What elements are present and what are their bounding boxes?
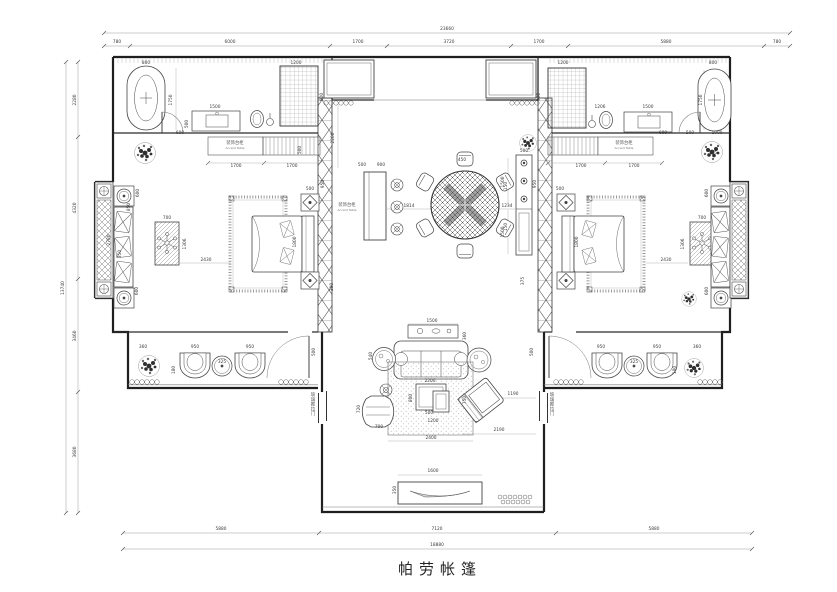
text-label: 装饰台柜 — [226, 139, 244, 146]
dim-label: 2280 — [72, 94, 78, 105]
drawer-cabinet-right — [548, 137, 598, 155]
plant-sitting-left — [139, 356, 160, 377]
dim-label: 1200 — [428, 418, 439, 424]
dim-label: 500 — [311, 348, 317, 356]
bar-stool-1 — [391, 179, 403, 191]
dim-label: 300 — [329, 283, 335, 291]
dim-label: 500 — [297, 146, 303, 154]
text-label: 装饰台柜 — [615, 139, 633, 146]
dim-label: 1234 — [502, 203, 513, 209]
door-sitting-left — [267, 336, 309, 378]
dim-label: 2200 — [425, 378, 436, 384]
dim-label: 1306 — [182, 238, 188, 249]
dim-label: 1800 — [292, 236, 298, 247]
headboard-right — [562, 216, 574, 272]
plant-bedroom-right — [682, 292, 697, 307]
dim-label: 500 — [556, 186, 564, 192]
dim-label: 1200 — [558, 60, 569, 66]
dim-label: 1700 — [287, 163, 298, 169]
dim-label: 500 — [529, 348, 535, 356]
dim-label: 900 — [377, 162, 385, 168]
side-table-right-top — [711, 186, 731, 206]
dim-label: 600 — [704, 287, 710, 295]
coffee-table — [416, 384, 449, 412]
dining-chair-5 — [415, 218, 435, 239]
dim-label: 180 — [672, 366, 678, 374]
dim-label: 7120 — [432, 526, 443, 532]
plant-bath-left — [135, 143, 156, 164]
dim-label: 700 — [698, 215, 706, 221]
dim-label: 1200 — [291, 60, 302, 66]
door-label: 玻璃推拉门 — [550, 391, 555, 417]
side-table-right-bottom — [711, 288, 731, 308]
tub-chair-left-1 — [180, 353, 210, 378]
dining-table — [431, 171, 499, 239]
door-label: 玻璃推拉门 — [311, 391, 316, 417]
dim-label: 2430 — [661, 257, 672, 263]
floor-plan-canvas: 2366078060001700372017005880780588071205… — [0, 0, 837, 592]
dim-label: 800 — [142, 60, 150, 66]
bar-counter — [364, 172, 386, 240]
dim-label: 1500 — [500, 176, 506, 187]
dim-label: 1750 — [698, 94, 704, 105]
dim-label: 350 — [392, 486, 398, 494]
dim-label: 3680 — [72, 446, 78, 457]
dim-label: 750 — [462, 396, 468, 404]
dim-label: 720 — [356, 405, 362, 413]
door-sitting-right — [549, 336, 591, 378]
side-table-left-bottom — [114, 288, 134, 308]
dim-label: 6000 — [225, 39, 236, 45]
walls-interior — [113, 57, 730, 332]
dim-label: 450 — [458, 157, 466, 163]
bathtub-left — [127, 66, 165, 130]
nightstand-right-top — [557, 194, 575, 211]
dim-label: 23660 — [440, 26, 454, 32]
entry-curtain-scallops — [324, 101, 539, 105]
dim-label: 500 — [306, 186, 314, 192]
dim-label: 850 — [126, 203, 132, 211]
curtain-strip-right — [548, 59, 728, 64]
dim-label: 700 — [163, 215, 171, 221]
bar-stool-2 — [391, 201, 403, 213]
dim-label: 500 — [520, 148, 528, 154]
dim-label: 1750 — [168, 94, 174, 105]
tub-chair-left-2 — [235, 353, 265, 378]
dim-label: 1800 — [574, 236, 580, 247]
dim-label: 950 — [532, 180, 538, 188]
bench-right — [711, 207, 730, 287]
dim-label: 13740 — [60, 281, 66, 295]
porch-slab-right — [486, 60, 536, 98]
dim-label: 1814 — [404, 203, 415, 209]
text-label: 装饰台柜 — [338, 201, 356, 208]
window-scallops-left — [130, 380, 309, 385]
dim-label: 1700 — [534, 39, 545, 45]
vanity-right — [624, 112, 672, 132]
dim-label: 2780 — [106, 234, 112, 245]
nightstand-right-bottom — [557, 272, 575, 289]
tv-console — [398, 482, 482, 504]
dim-label: 950 — [653, 344, 661, 350]
dim-label: 700 — [375, 424, 383, 430]
dim-label: 500 — [184, 120, 190, 128]
dim-label: 600 — [176, 130, 184, 136]
text-label: Accent Table — [615, 146, 634, 150]
dim-label: 180 — [171, 366, 177, 374]
dim-label: 375 — [520, 277, 526, 285]
dim-label: 1700 — [576, 163, 587, 169]
nightstand-left-bottom — [301, 272, 319, 289]
dim-label: 1000 — [712, 130, 723, 136]
drawing-title: 帕劳帐篷 — [360, 558, 520, 579]
dim-label: 1500 — [427, 318, 438, 324]
shower-head-right — [589, 115, 596, 128]
nightstand-left-top — [301, 194, 319, 211]
dim-label: 325 — [630, 359, 638, 365]
shower-left — [280, 66, 318, 126]
bench-left — [114, 207, 133, 287]
dim-label: 500 — [358, 162, 366, 168]
window-scallops-right — [554, 380, 723, 385]
dim-label: 1700 — [353, 39, 364, 45]
console-dining-right — [516, 155, 532, 255]
dim-label: 900 — [319, 93, 325, 101]
tea-table-left — [155, 222, 179, 265]
dim-label: 350 — [117, 250, 123, 258]
door-bath-left — [162, 112, 183, 133]
dim-label: 1190 — [508, 391, 519, 397]
dim-label: 600 — [134, 287, 140, 295]
dim-label: 1306 — [680, 238, 686, 249]
dim-label: 1500 — [500, 226, 506, 237]
dim-label: 5880 — [649, 526, 660, 532]
round-table-left — [212, 356, 232, 376]
dim-label: 540 — [368, 352, 374, 360]
dim-label: 1500 — [643, 104, 654, 110]
dim-label: 800 — [408, 394, 414, 402]
lattice-screen-left — [318, 98, 332, 332]
sofa-console — [408, 325, 458, 338]
text-label: Accent Table — [338, 208, 357, 212]
plant-sitting-right — [685, 359, 704, 378]
dim-label: 5880 — [216, 526, 227, 532]
dim-label: 600 — [659, 130, 667, 136]
tea-table-right — [690, 222, 714, 265]
lattice-screen-right — [538, 98, 552, 332]
dim-label: 600 — [704, 189, 710, 197]
dim-label: 1600 — [428, 468, 439, 474]
shower-right — [548, 68, 586, 128]
door-bath-right — [679, 112, 700, 133]
porch-slab-left — [324, 60, 374, 98]
dim-label: 600 — [135, 189, 141, 197]
dim-label: 3460 — [72, 330, 78, 341]
dim-label: 360 — [462, 332, 468, 340]
dim-label: 325 — [218, 359, 226, 365]
shower-head-left — [267, 113, 274, 126]
stool-right — [600, 112, 613, 129]
dim-label: 1206 — [595, 104, 606, 110]
tub-chair-right-1 — [592, 353, 622, 378]
headboard-left — [302, 216, 314, 272]
dim-label: 365 — [709, 150, 717, 156]
dim-label: 950 — [597, 344, 605, 350]
dim-label: 360 — [693, 344, 701, 350]
dim-label: 5880 — [661, 39, 672, 45]
dim-label: 500 — [425, 410, 433, 416]
dim-label: 3720 — [444, 39, 455, 45]
dim-label: 4320 — [72, 202, 78, 213]
dim-label: 900 — [536, 93, 542, 101]
dim-label: 360 — [139, 344, 147, 350]
bay-console-right — [730, 182, 748, 298]
dim-label: 1500 — [210, 104, 221, 110]
stool-left — [251, 111, 264, 128]
dim-label: 780 — [773, 39, 781, 45]
vanity-left — [192, 111, 240, 131]
dim-label: 2430 — [201, 257, 212, 263]
drawer-cabinet-left — [263, 137, 320, 155]
round-table-right — [624, 356, 644, 376]
dim-label: 18880 — [430, 542, 444, 548]
dining-chair-6 — [415, 172, 435, 193]
dim-label: 950 — [320, 180, 326, 188]
dim-label: 950 — [191, 344, 199, 350]
text-label: Accent Table — [226, 146, 245, 150]
dim-label: 1700 — [629, 163, 640, 169]
dim-label: 2190 — [494, 427, 505, 433]
dim-label: 800 — [709, 60, 717, 66]
bar-stool-3 — [391, 223, 403, 235]
dining-chair-4 — [457, 244, 473, 258]
barrel-table — [362, 396, 394, 427]
dim-label: 780 — [113, 39, 121, 45]
dim-label: 500 — [686, 130, 694, 136]
walls-thin — [128, 100, 722, 507]
dim-label: 950 — [246, 344, 254, 350]
dim-label: 1700 — [231, 163, 242, 169]
drawing-sheet: 2366078060001700372017005880780588071205… — [0, 0, 837, 592]
terrace-plants — [498, 495, 532, 504]
dim-label: 2200 — [330, 132, 336, 143]
dim-label: 2400 — [426, 435, 437, 441]
